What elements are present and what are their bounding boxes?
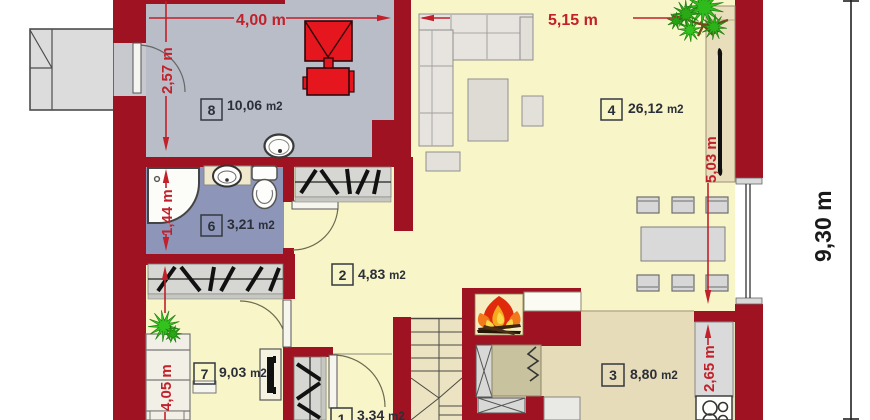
svg-text:5,15 m: 5,15 m (548, 12, 598, 29)
svg-text:5,03 m: 5,03 m (703, 136, 720, 183)
svg-text:2,57 m: 2,57 m (159, 47, 176, 94)
svg-text:4: 4 (608, 102, 616, 118)
svg-text:2: 2 (339, 267, 347, 283)
svg-text:2,65 m: 2,65 m (701, 345, 718, 392)
svg-text:8: 8 (208, 102, 216, 118)
svg-text:9,30 m: 9,30 m (810, 190, 836, 262)
svg-text:4,05 m: 4,05 m (158, 364, 175, 411)
svg-text:3: 3 (609, 367, 617, 383)
svg-text:1,44 m: 1,44 m (159, 189, 176, 236)
svg-text:7: 7 (201, 366, 209, 382)
svg-text:6: 6 (208, 218, 216, 234)
svg-text:4,00 m: 4,00 m (236, 12, 286, 29)
svg-text:1: 1 (338, 411, 346, 420)
